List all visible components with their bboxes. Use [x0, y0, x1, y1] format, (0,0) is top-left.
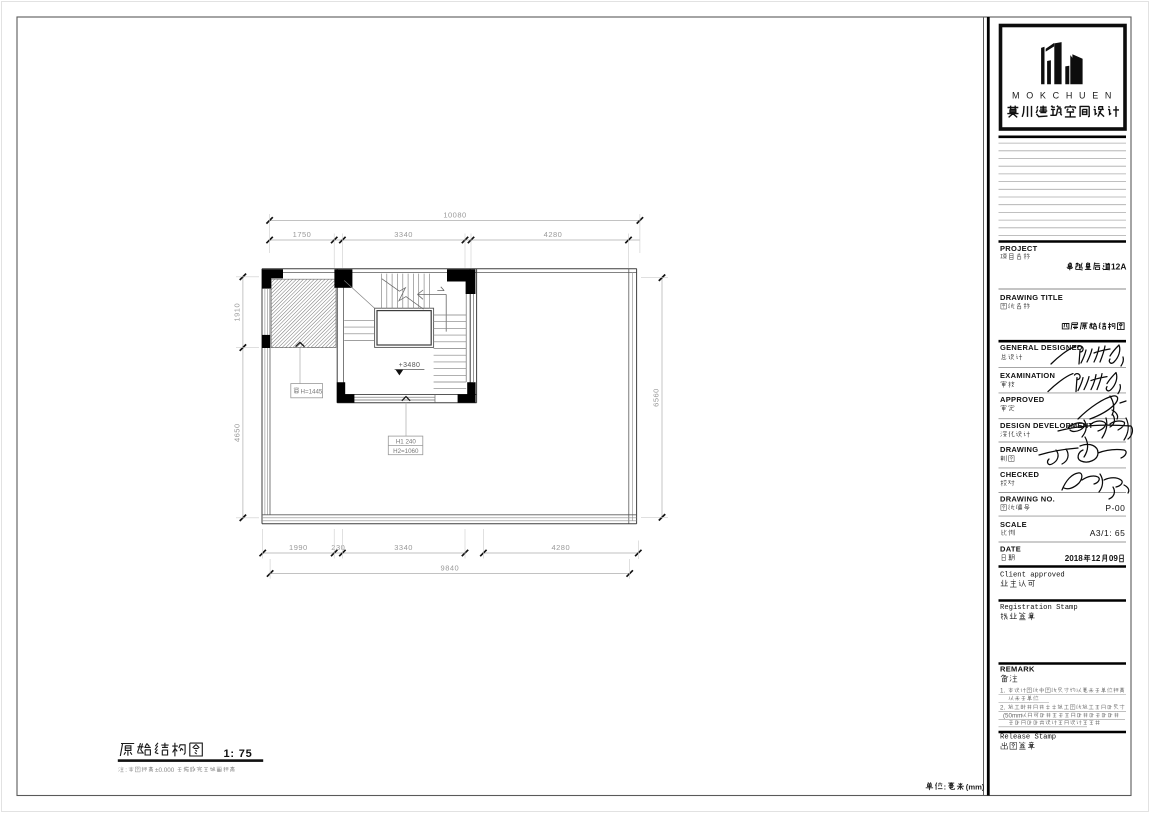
svg-text:2.: 2.	[1000, 705, 1005, 712]
svg-text:1910: 1910	[233, 303, 242, 322]
svg-text:1750: 1750	[293, 230, 312, 239]
svg-text:1: 75: 1: 75	[224, 748, 253, 760]
svg-text:1990: 1990	[289, 543, 308, 552]
svg-text:10080: 10080	[443, 211, 466, 220]
svg-text:DRAWING: DRAWING	[1000, 445, 1038, 454]
svg-text:230: 230	[331, 543, 345, 552]
svg-text:CHECKED: CHECKED	[1000, 470, 1039, 479]
svg-text:4280: 4280	[551, 543, 570, 552]
svg-text:12: 12	[1091, 554, 1101, 563]
svg-text:Client approved: Client approved	[1000, 571, 1065, 579]
svg-text:(50mm: (50mm	[1003, 713, 1022, 720]
svg-text:SCALE: SCALE	[1000, 520, 1027, 529]
svg-text:9840: 9840	[441, 564, 460, 573]
svg-text:H2=1060: H2=1060	[393, 448, 419, 455]
svg-text:±0.000: ±0.000	[155, 767, 175, 774]
svg-text:4280: 4280	[544, 230, 563, 239]
svg-text:REMARK: REMARK	[1000, 665, 1035, 674]
svg-text:H1 240: H1 240	[396, 438, 417, 445]
svg-text:A3/1: 65: A3/1: 65	[1090, 528, 1126, 538]
svg-text:GENERAL DESIGNED: GENERAL DESIGNED	[1000, 343, 1083, 352]
svg-text:PROJECT: PROJECT	[1000, 244, 1038, 253]
svg-text:P-00: P-00	[1105, 503, 1125, 513]
svg-text::: :	[944, 783, 947, 792]
svg-text:2018: 2018	[1065, 554, 1084, 563]
svg-text:M O K C H U E N: M O K C H U E N	[1012, 91, 1114, 101]
svg-text:+3480: +3480	[399, 362, 421, 369]
svg-text:(mm): (mm)	[966, 782, 985, 791]
svg-text:3340: 3340	[394, 230, 413, 239]
svg-text:Registration Stamp: Registration Stamp	[1000, 604, 1078, 612]
svg-text:DRAWING NO.: DRAWING NO.	[1000, 495, 1055, 504]
svg-text:09: 09	[1109, 554, 1119, 563]
svg-text:12A: 12A	[1111, 262, 1126, 272]
svg-text:1.: 1.	[1000, 688, 1005, 695]
svg-text:DATE: DATE	[1000, 545, 1021, 554]
svg-text:3340: 3340	[394, 543, 413, 552]
svg-text::: :	[125, 767, 127, 774]
svg-text:APPROVED: APPROVED	[1000, 395, 1045, 404]
svg-text:EXAMINATION: EXAMINATION	[1000, 371, 1055, 380]
svg-text:H=1445: H=1445	[301, 388, 323, 395]
svg-text:Release Stamp: Release Stamp	[1000, 734, 1056, 742]
svg-text:4650: 4650	[233, 423, 242, 442]
svg-text:6560: 6560	[651, 388, 660, 407]
svg-text:DRAWING TITLE: DRAWING TITLE	[1000, 293, 1063, 302]
